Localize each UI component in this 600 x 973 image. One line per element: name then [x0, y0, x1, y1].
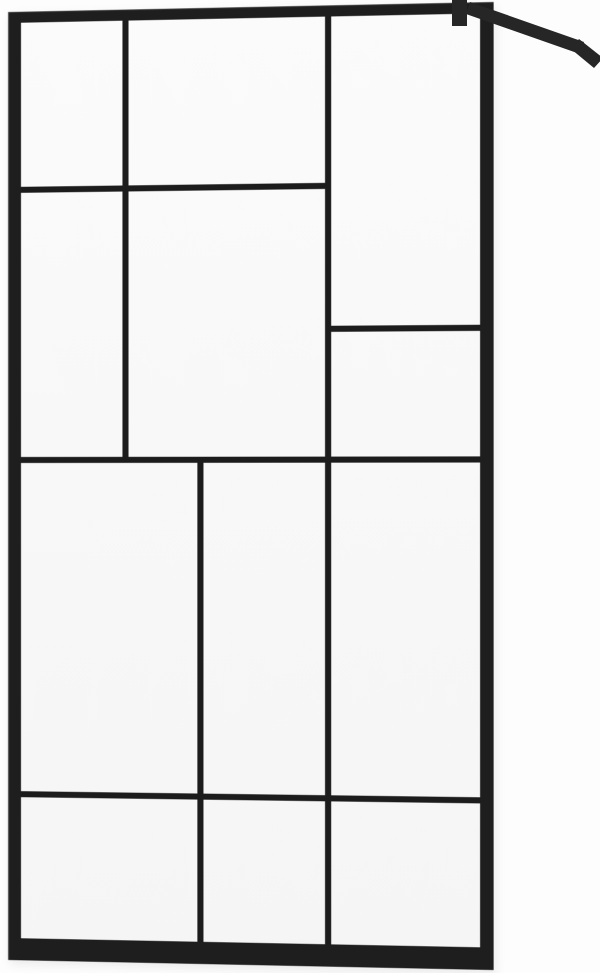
bracket-wall-plate: [571, 39, 600, 68]
mullion-v1-top-left: [122, 21, 128, 463]
mullion-v3-lower: [197, 457, 203, 942]
mullion-h3-right-column: [325, 325, 480, 332]
mullion-h1-upper-left: [21, 183, 331, 193]
panel-frame: [8, 2, 494, 970]
mullion-h2-middle-full: [21, 456, 480, 463]
product-photo: Product photo of a walk-in shower glass …: [0, 0, 600, 973]
mullion-v2-full-height: [325, 16, 331, 944]
mullion-h4-lower-full: [21, 791, 480, 803]
glass: [21, 13, 480, 947]
